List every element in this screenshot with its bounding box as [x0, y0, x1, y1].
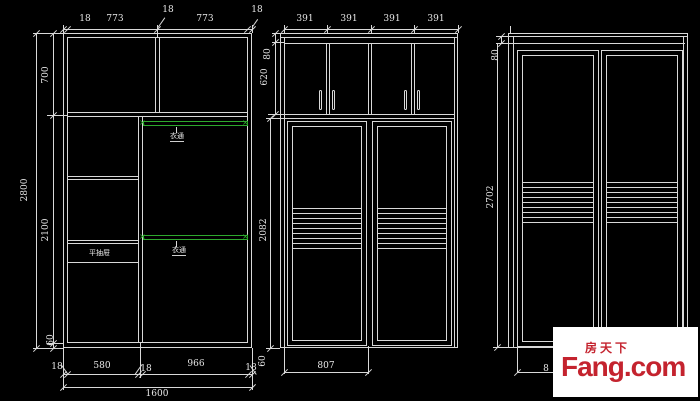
- dim-label: 60: [258, 346, 268, 376]
- line: [292, 218, 362, 219]
- dim-label: 2100: [41, 215, 51, 245]
- line: [606, 222, 678, 223]
- rail-label: 衣通: [170, 132, 184, 142]
- dim-label: 1600: [139, 389, 175, 399]
- line: [284, 43, 454, 44]
- line: [67, 37, 248, 343]
- dim-label: 773: [100, 14, 130, 24]
- line: [284, 118, 454, 119]
- line: [138, 116, 139, 343]
- dim-label: 60: [46, 325, 56, 355]
- line: [142, 116, 143, 343]
- line: [159, 37, 160, 112]
- rail-end-x-icon: ×: [139, 119, 146, 127]
- dim-label: 773: [190, 14, 220, 24]
- line: [377, 223, 447, 224]
- line: [292, 213, 362, 214]
- line: [411, 43, 412, 114]
- line: [371, 43, 372, 114]
- line: [377, 243, 447, 244]
- line: [67, 116, 248, 117]
- line: [281, 37, 457, 38]
- line: [493, 347, 508, 348]
- line: [606, 202, 678, 203]
- line: [522, 197, 594, 198]
- line: [63, 387, 252, 388]
- line: [513, 36, 514, 348]
- fang-logo: Fang.com: [561, 351, 685, 383]
- door-handle: [319, 90, 322, 110]
- line: [377, 238, 447, 239]
- line: [292, 248, 362, 249]
- dim-label: 391: [423, 14, 449, 24]
- line: [517, 347, 518, 373]
- line: [509, 36, 687, 37]
- line: [606, 192, 678, 193]
- clothes-rail-top: [143, 121, 248, 126]
- dim-label: 18: [249, 5, 265, 15]
- line: [522, 217, 594, 218]
- dim-label: 391: [336, 14, 362, 24]
- line: [377, 233, 447, 234]
- door-handle: [332, 90, 335, 110]
- line: [67, 179, 138, 180]
- dim-label: 391: [292, 14, 318, 24]
- dim-label: 2082: [259, 215, 269, 245]
- line: [67, 243, 138, 244]
- line: [365, 369, 372, 376]
- drawer-label: 平抽屉: [89, 249, 110, 257]
- dim-label: 807: [311, 361, 341, 371]
- line: [414, 43, 415, 114]
- line: [606, 207, 678, 208]
- line: [606, 182, 678, 183]
- line: [155, 37, 156, 112]
- line: [292, 208, 362, 209]
- line: [284, 372, 368, 373]
- rail-label: 衣通: [172, 246, 186, 256]
- line: [606, 197, 678, 198]
- line: [377, 248, 447, 249]
- door-handle: [417, 90, 420, 110]
- line: [606, 212, 678, 213]
- line: [326, 43, 327, 114]
- line: [377, 208, 447, 209]
- dim-label: 80: [491, 40, 501, 70]
- line: [47, 115, 67, 116]
- line: [513, 43, 685, 44]
- rail-end-x-icon: ×: [242, 119, 249, 127]
- line: [36, 33, 37, 348]
- line: [292, 243, 362, 244]
- line: [522, 207, 594, 208]
- dim-label: 966: [181, 359, 211, 369]
- line: [522, 202, 594, 203]
- line: [522, 182, 594, 183]
- line: [292, 233, 362, 234]
- dim-label: 620: [260, 62, 270, 92]
- line: [377, 228, 447, 229]
- line: [67, 112, 248, 113]
- dim-label: 18: [160, 5, 176, 15]
- line: [63, 374, 252, 375]
- line: [497, 43, 498, 347]
- line: [292, 223, 362, 224]
- dim-label: 2800: [20, 175, 30, 205]
- line: [522, 55, 594, 342]
- line: [292, 228, 362, 229]
- line: [284, 114, 454, 115]
- line: [53, 33, 54, 348]
- dim-label: 700: [41, 60, 51, 90]
- line: [329, 43, 330, 114]
- door-handle: [404, 90, 407, 110]
- clothes-rail-bottom: [143, 235, 248, 240]
- line: [606, 55, 678, 342]
- line: [292, 238, 362, 239]
- dim-label: 18: [77, 14, 93, 24]
- line: [683, 36, 684, 348]
- rail-end-x-icon: ×: [139, 233, 146, 241]
- line: [67, 240, 138, 241]
- line: [284, 37, 285, 348]
- line: [67, 176, 138, 177]
- line: [454, 37, 455, 348]
- line: [522, 187, 594, 188]
- line: [522, 222, 594, 223]
- line: [606, 187, 678, 188]
- fang-watermark: 房天下 Fang.com: [553, 327, 698, 397]
- line: [275, 33, 276, 114]
- line: [522, 212, 594, 213]
- rail-end-x-icon: ×: [242, 233, 249, 241]
- line: [606, 217, 678, 218]
- line: [270, 118, 271, 348]
- dim-label: 580: [87, 361, 117, 371]
- dim-label: 391: [379, 14, 405, 24]
- line: [522, 192, 594, 193]
- dim-label: 2702: [486, 182, 496, 212]
- line: [510, 26, 511, 33]
- line: [377, 213, 447, 214]
- line: [377, 218, 447, 219]
- line: [368, 43, 369, 114]
- cad-wardrobe-drawing: × × × × 衣通 衣通 平抽屉 18 773 18 773 18: [0, 0, 700, 401]
- line: [67, 262, 138, 263]
- dim-label: 8: [541, 364, 551, 374]
